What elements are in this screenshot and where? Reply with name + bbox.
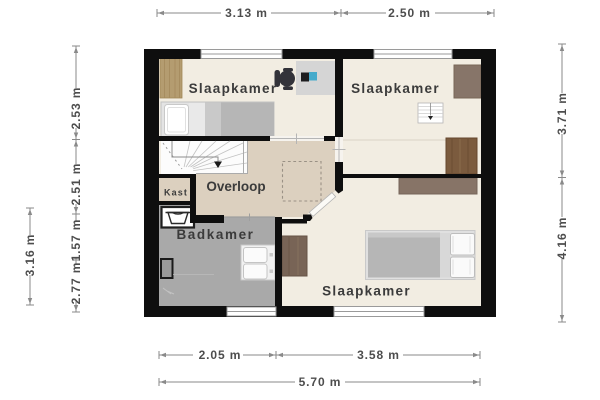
svg-text:4.16 m: 4.16 m <box>555 217 569 260</box>
svg-text:2.77 m: 2.77 m <box>69 262 83 305</box>
svg-text:2.05 m: 2.05 m <box>199 348 242 362</box>
svg-text:2.50 m: 2.50 m <box>388 6 431 20</box>
svg-text:Slaapkamer: Slaapkamer <box>322 284 411 299</box>
svg-text:Kast: Kast <box>164 188 188 198</box>
svg-text:3.58 m: 3.58 m <box>357 348 400 362</box>
svg-text:1.57 m: 1.57 m <box>69 219 83 262</box>
svg-text:Badkamer: Badkamer <box>176 227 254 242</box>
svg-text:2.53 m: 2.53 m <box>69 87 83 130</box>
svg-text:2.51 m: 2.51 m <box>69 163 83 206</box>
svg-text:3.71 m: 3.71 m <box>555 92 569 135</box>
svg-text:Slaapkamer: Slaapkamer <box>189 81 278 96</box>
svg-text:Slaapkamer: Slaapkamer <box>351 81 440 96</box>
svg-text:3.13 m: 3.13 m <box>225 6 268 20</box>
svg-text:5.70 m: 5.70 m <box>299 375 342 389</box>
svg-text:3.16 m: 3.16 m <box>23 234 37 277</box>
svg-text:Overloop: Overloop <box>206 179 265 194</box>
